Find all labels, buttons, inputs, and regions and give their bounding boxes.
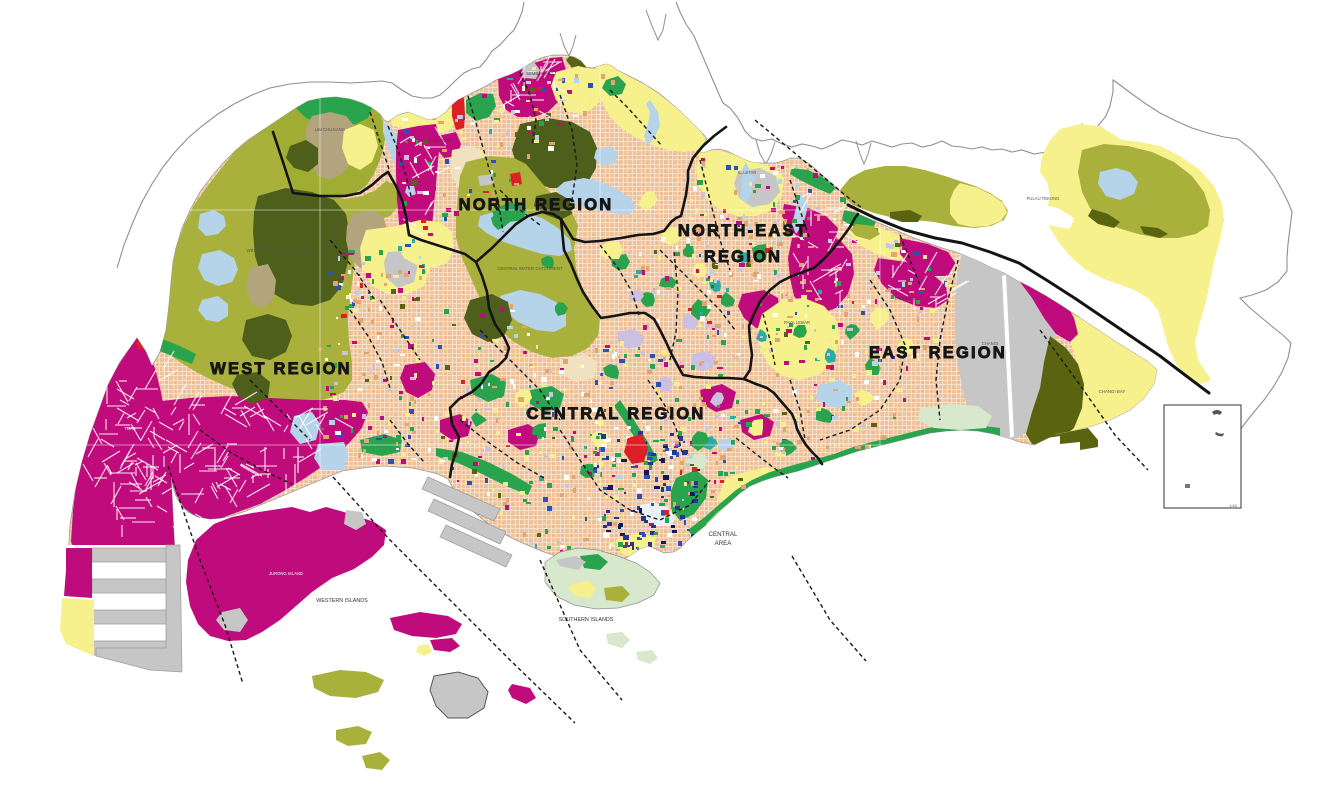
svg-text:CENTRAL WATER CATCHMENT: CENTRAL WATER CATCHMENT (497, 266, 563, 271)
svg-text:SOUTHERN ISLANDS: SOUTHERN ISLANDS (559, 617, 614, 623)
svg-text:PAYA LEBAR: PAYA LEBAR (784, 320, 810, 325)
svg-text:JURONG ISLAND: JURONG ISLAND (269, 571, 303, 576)
svg-text:SELETAR: SELETAR (738, 170, 757, 175)
svg-text:EAST REGION: EAST REGION (869, 344, 1007, 362)
svg-text:NORTH-EAST: NORTH-EAST (678, 222, 808, 240)
svg-text:LIM CHU KANG: LIM CHU KANG (315, 127, 345, 132)
svg-text:NORTH REGION: NORTH REGION (459, 196, 614, 214)
svg-text:WESTERN ISLANDS: WESTERN ISLANDS (316, 598, 368, 604)
svg-text:TUAS: TUAS (124, 426, 135, 431)
svg-text:CENTRAL REGION: CENTRAL REGION (526, 405, 705, 423)
svg-text:PULAU TEKONG: PULAU TEKONG (1027, 196, 1060, 201)
svg-text:TAMPINES: TAMPINES (894, 296, 915, 301)
svg-text:CHANGI: CHANGI (982, 341, 998, 346)
svg-text:WEST REGION: WEST REGION (210, 360, 352, 378)
svg-text:CENTRAL: CENTRAL (709, 531, 738, 538)
svg-text:WOODLANDS: WOODLANDS (423, 138, 451, 143)
svg-text:1:60: 1:60 (1229, 503, 1238, 508)
svg-text:REGION: REGION (704, 248, 782, 266)
svg-text:AREA: AREA (715, 540, 733, 547)
svg-text:SEMBAWANG: SEMBAWANG (526, 71, 553, 76)
svg-text:WESTERN WATER CATCHMENT: WESTERN WATER CATCHMENT (247, 248, 314, 253)
svg-text:CHANGI BAY: CHANGI BAY (1099, 389, 1126, 394)
